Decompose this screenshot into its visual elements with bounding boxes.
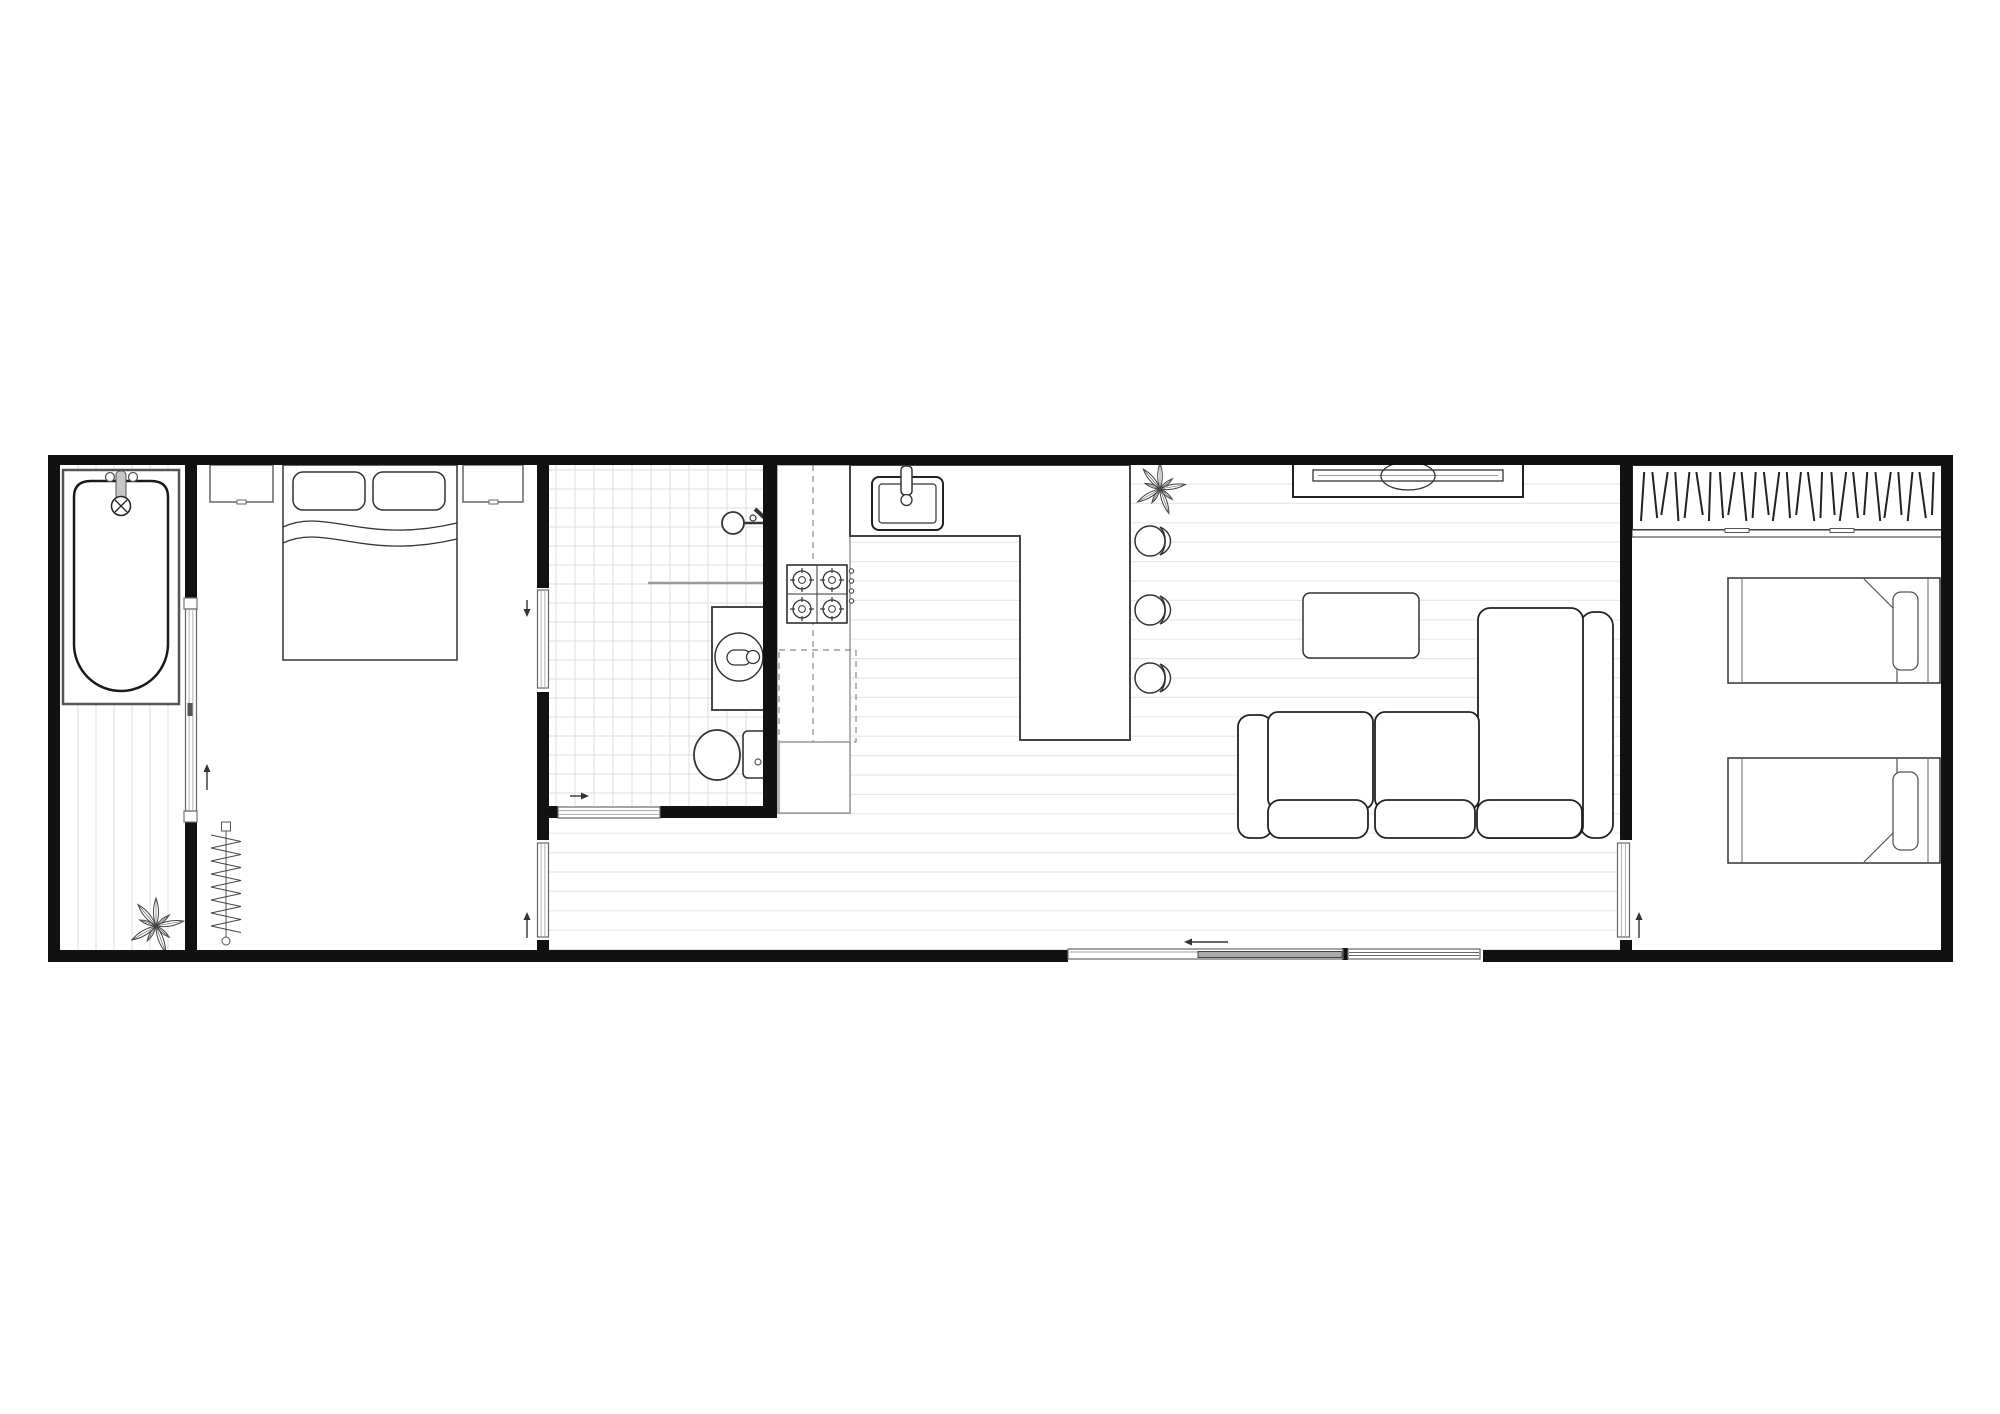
bar-stool [1135,595,1171,625]
potted-plant [1137,463,1185,513]
sofa-back-cushion [1375,712,1479,809]
shower-valve [750,515,756,521]
pillow [373,472,445,510]
tub-knob [129,473,138,482]
bedroom-hall-sliding-door [538,843,549,937]
nightstand-handle [237,500,246,504]
sofa-seat-cushion [1375,800,1475,838]
ensuite-hall-sliding-door [558,807,660,818]
wall-right [1941,455,1953,962]
pocket-door-cap [184,598,197,609]
entry-window [1348,949,1480,959]
wall-living-bedroom2-lower [1620,940,1632,962]
door-slide-arrow [524,912,531,938]
wardrobe-track [1632,530,1943,537]
wall-bedroom-ensuite-upper [537,465,549,588]
floor-plan [0,0,2000,1414]
entry-door-slide-arrow [1184,939,1228,946]
wardrobe-track-notch [1830,529,1854,533]
tub-knob [106,473,115,482]
wall-bath-bedroom-upper [185,465,197,598]
washing-machine-latch-cap [747,651,760,664]
wall-bedroom-ensuite-lower [537,940,549,950]
kitchen-counter-lower [779,742,850,813]
wall-ensuite-bottom-left [548,806,558,818]
sofa-back-cushion [1268,712,1373,809]
shower-head [722,512,744,534]
kitchen-faucet-base [901,495,912,506]
ensuite-sliding-door [538,590,549,688]
door-handle [188,703,193,716]
pillow [1893,592,1918,670]
radiator-curtain [211,822,241,945]
pillow [1893,772,1918,850]
wall-bottom-right [1483,950,1953,962]
stove-knob [849,589,853,593]
sofa-seat-cushion [1268,800,1368,838]
sofa-arm-right [1580,612,1613,838]
door-slide-arrow [204,764,211,790]
floor-plan-page [0,0,2000,1414]
nightstand [463,465,523,502]
toilet-bowl [694,730,740,780]
wall-top [48,455,1953,465]
pillow [293,472,365,510]
bar-stool [1135,663,1171,693]
nightstand [210,465,273,502]
door-slide-arrow [570,793,589,800]
wall-ensuite-kitchen [763,465,777,815]
entry-sliding-panel [1198,952,1342,958]
door-slide-arrow [524,600,531,617]
wall-bedroom-ensuite-mid [537,692,549,840]
bedroom2-sliding-door [1618,843,1630,937]
door-slide-arrow [1636,912,1643,938]
wall-ensuite-bottom-right [660,806,777,818]
sofa-arm-left [1238,715,1272,838]
toilet-button [755,759,761,765]
wardrobe-track-notch [1725,529,1749,533]
stove-knob [849,599,853,603]
pocket-door-cap [184,811,197,822]
bar-stool [1135,526,1171,556]
stove-knob [849,579,853,583]
wall-left [48,455,60,962]
wall-bottom-left [48,950,1068,962]
stove-knob [849,569,853,573]
kitchen-faucet [901,466,912,495]
wall-bath-bedroom-lower [185,822,197,950]
hallway-plank-floor [548,833,777,949]
coffee-table [1303,593,1419,658]
sofa-seat-cushion [1477,800,1582,838]
potted-plant [132,898,184,952]
wall-living-bedroom2-upper [1620,465,1632,840]
nightstand-handle [489,500,498,504]
